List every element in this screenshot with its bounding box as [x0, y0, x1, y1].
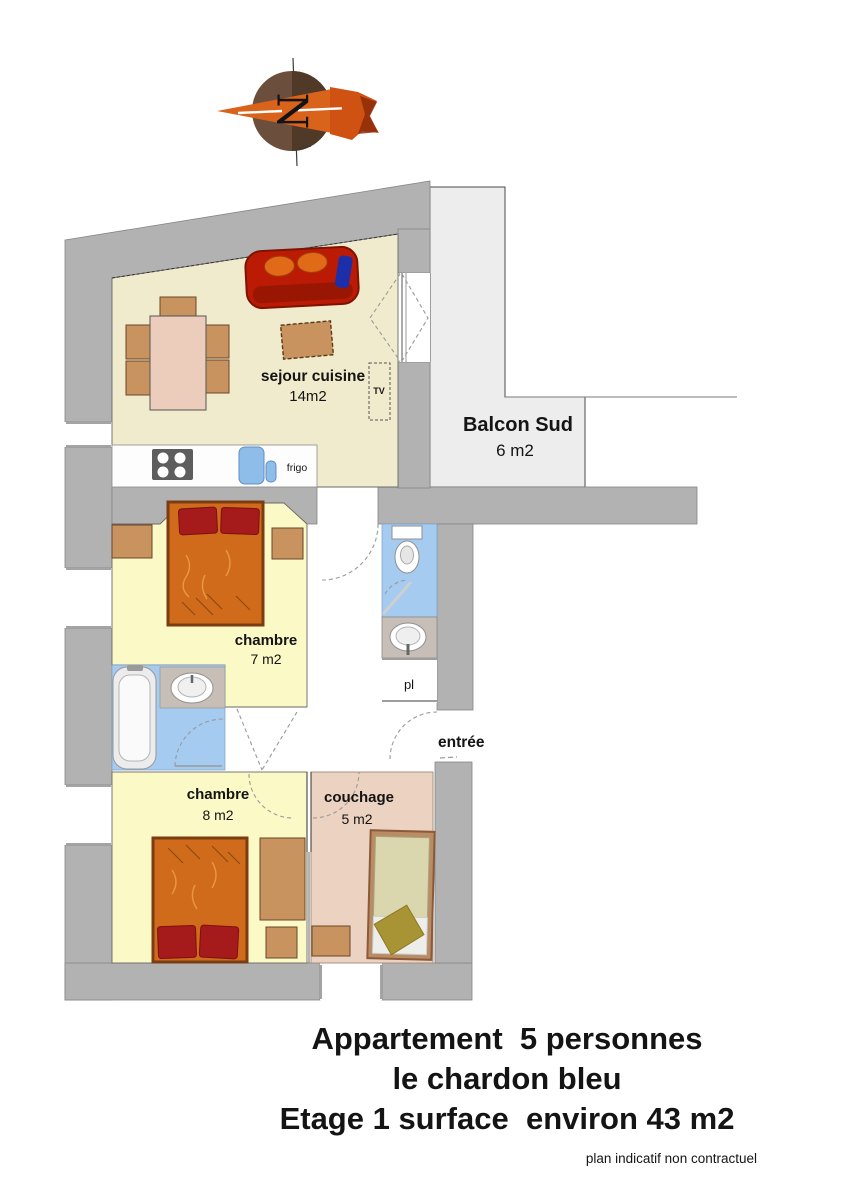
- dining-chair: [126, 325, 151, 359]
- compass-north-label: N: [268, 93, 317, 130]
- stove-top: [152, 449, 193, 480]
- couchage-label: couchage: [324, 789, 394, 806]
- window-left-1: [64, 422, 112, 447]
- title-block: Appartement 5 personnes le chardon bleu …: [280, 1021, 757, 1166]
- disclaimer-note: plan indicatif non contractuel: [586, 1151, 757, 1166]
- window-left-3: [64, 785, 112, 845]
- coffee-table: [281, 321, 334, 359]
- wall-right-lower: [435, 762, 472, 963]
- dining-chair: [126, 361, 151, 395]
- washbasin-inner: [396, 627, 420, 645]
- compass-rose-icon: N: [217, 58, 379, 166]
- bed-pillow: [221, 507, 260, 534]
- window-left-2: [64, 568, 112, 628]
- nightstand: [112, 525, 152, 558]
- sink-drainer: [266, 461, 276, 482]
- wall-hall-right: [437, 524, 473, 710]
- balcon-area: 6 m2: [496, 441, 534, 460]
- wardrobe: [260, 838, 305, 920]
- sofa: [245, 246, 360, 309]
- dining-table: [150, 316, 206, 410]
- stove: [152, 449, 193, 480]
- dining-chair: [205, 325, 229, 358]
- wall-bottom-right: [382, 963, 472, 1000]
- wall-sejour-right-upper: [398, 229, 430, 273]
- chambre7-label: chambre: [235, 632, 298, 649]
- burner: [158, 467, 169, 478]
- balcon-label: Balcon Sud: [463, 414, 573, 436]
- title-line-1: Appartement 5 personnes: [311, 1021, 702, 1056]
- floor-plan-svg: N: [0, 0, 842, 1200]
- dining-chair: [160, 297, 196, 316]
- balcony-door-opening: [400, 273, 430, 362]
- sejour-label: sejour cuisine: [261, 368, 366, 385]
- chambre8-furniture: [153, 838, 305, 962]
- window-bottom: [320, 963, 382, 1000]
- nightstand: [272, 528, 303, 559]
- coffee-table-top: [281, 321, 334, 359]
- chambre7-door-swing: [237, 709, 297, 770]
- bathtub-inner: [119, 675, 150, 761]
- entrance-door-swing: [390, 712, 437, 759]
- floor-plan-page: N: [0, 0, 842, 1200]
- toilet-tank: [392, 526, 422, 539]
- couchage-furniture: [367, 830, 434, 960]
- bed-pillow: [199, 925, 239, 959]
- title-line-2: le chardon bleu: [392, 1061, 621, 1096]
- bathtub-tap: [127, 665, 143, 671]
- sink-basin: [239, 447, 264, 484]
- partition-chambre8-couchage: [307, 772, 311, 963]
- pl-label: pl: [404, 677, 414, 692]
- toilet-bowl-inner: [401, 546, 414, 564]
- stool: [266, 927, 297, 958]
- chambre8-area: 8 m2: [202, 807, 233, 823]
- wall-bottom-left: [65, 963, 320, 1000]
- sejour-area: 14m2: [289, 388, 327, 405]
- wall-left-middle: [65, 628, 112, 785]
- chambre7-area: 7 m2: [250, 651, 281, 667]
- bed-pillow: [178, 507, 217, 535]
- entrance-door-leaf: [440, 757, 457, 758]
- couchage-area: 5 m2: [341, 811, 372, 827]
- wall-mid-right: [378, 487, 697, 524]
- title-line-3: Etage 1 surface environ 43 m2: [280, 1101, 735, 1136]
- single-bed-mattress: [373, 836, 429, 919]
- stool: [312, 926, 350, 956]
- wall-left-upper: [65, 447, 112, 568]
- wall-sejour-right-lower: [398, 362, 430, 488]
- sejour-door-swing: [322, 524, 378, 580]
- tv-label: TV: [373, 386, 385, 396]
- bed-pillow: [157, 925, 196, 958]
- entree-label: entrée: [438, 734, 485, 751]
- burner: [175, 453, 186, 464]
- burner: [175, 467, 186, 478]
- burner: [158, 453, 169, 464]
- dining-chair: [205, 360, 229, 393]
- frigo-label: frigo: [287, 462, 308, 474]
- chambre8-label: chambre: [187, 786, 250, 803]
